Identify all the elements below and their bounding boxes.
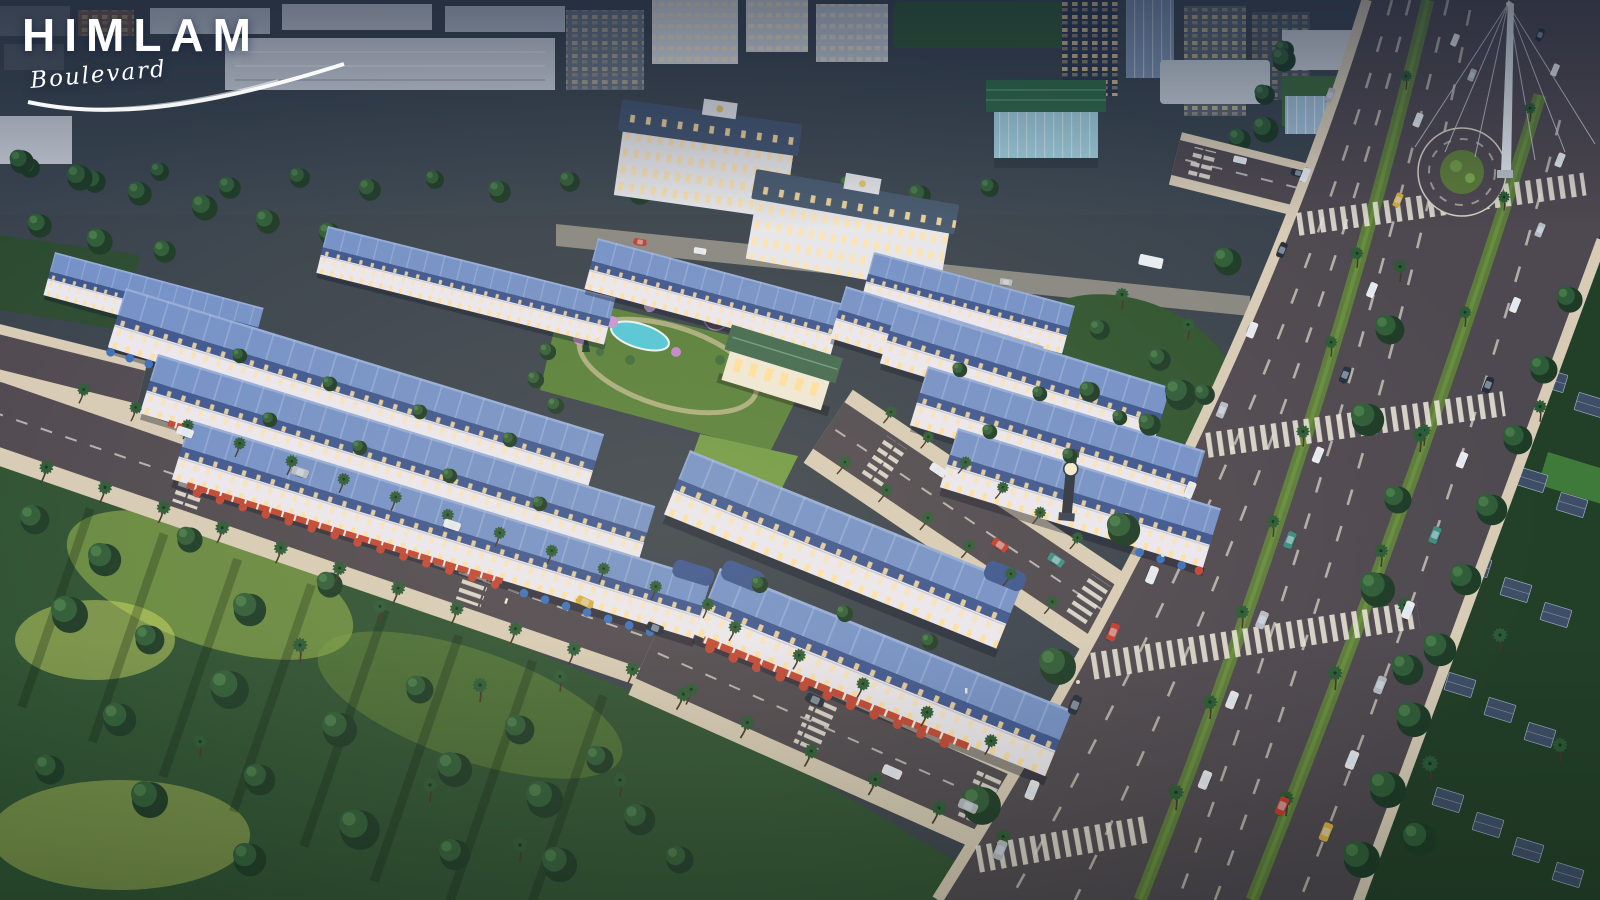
warm-light-wash — [0, 0, 1600, 900]
him-lam-boulevard-aerial-render: HIMLAM Boulevard — [0, 0, 1600, 900]
render-scene — [0, 0, 1600, 900]
